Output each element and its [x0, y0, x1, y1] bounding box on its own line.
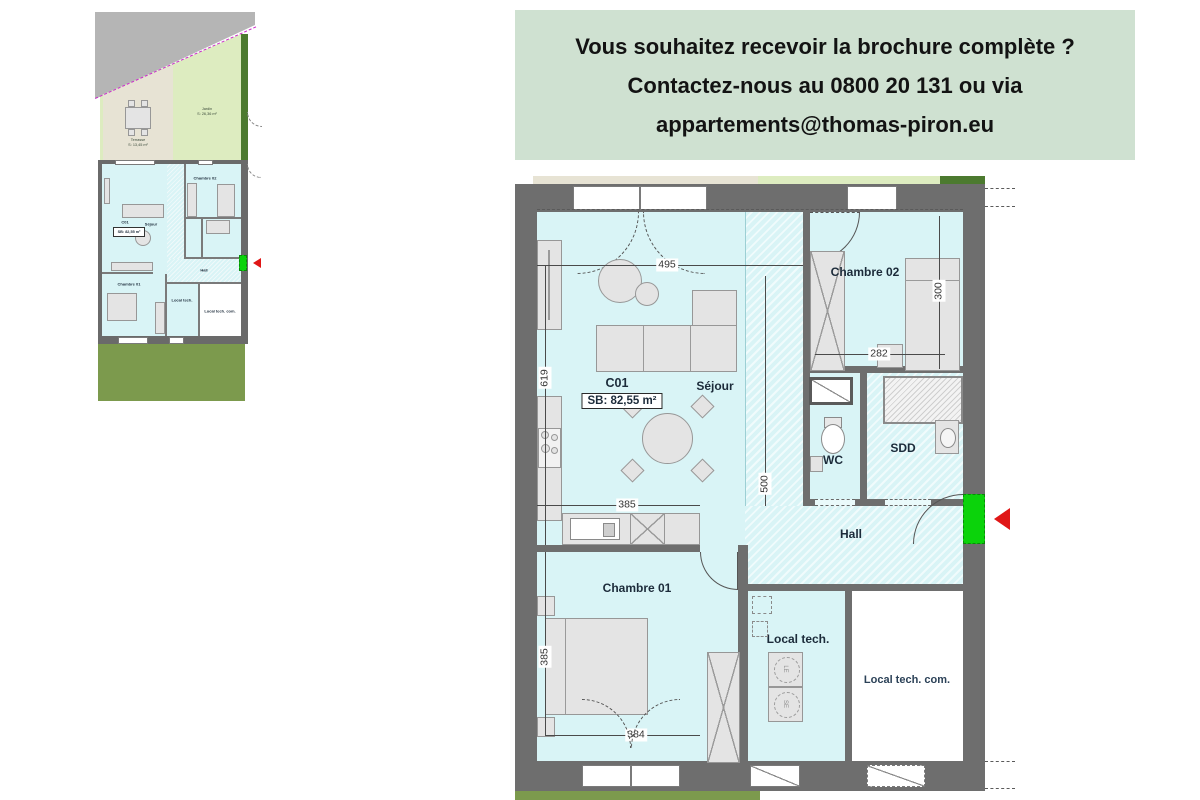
mini-window	[118, 337, 148, 344]
boundary-dashed	[985, 761, 1015, 762]
flyer-page: Vous souhaitez recevoir la brochure comp…	[0, 0, 1200, 800]
mini-window	[198, 160, 213, 165]
chambre01-wardrobe	[707, 652, 740, 763]
mini-wall	[102, 272, 153, 274]
mini-bed-ch02	[217, 184, 235, 217]
mini-chambre02-label: Chambre 02	[194, 176, 217, 181]
tv-line	[548, 250, 550, 320]
mini-shaft-hatch	[167, 164, 184, 259]
toilet-bowl	[821, 424, 845, 454]
mini-kitchen-counter	[111, 262, 153, 271]
mini-jardin-label: JardinS: 26,36 m²	[197, 107, 217, 117]
mini-unit-area: SB: 82,55 m²	[118, 230, 141, 234]
washer-label: LE	[782, 665, 788, 672]
mini-window	[115, 160, 155, 165]
wall-hall-bottom	[745, 584, 963, 591]
entrance-arrow	[994, 508, 1010, 530]
sofa-divider	[690, 326, 691, 371]
entrance-door	[963, 494, 985, 544]
mini-window	[169, 337, 184, 344]
wc-door-opening	[815, 499, 855, 506]
chambre01-nightstand	[537, 596, 555, 616]
dim-619: 619	[539, 367, 552, 389]
dim-line-619	[545, 265, 546, 545]
grass-strip	[515, 791, 760, 800]
window-dashed-line	[537, 209, 963, 210]
local-tech-window	[750, 765, 800, 787]
apartment-floor-plan: C01 SB: 82,55 m² Séjour 495 619 500 385 …	[515, 176, 1015, 800]
dim-line-500	[765, 276, 766, 506]
local-tech-com-label: Local tech. com.	[864, 674, 950, 686]
mini-local-tech-com-label: Local tech. com.	[204, 309, 235, 314]
shower	[883, 376, 963, 424]
banner-line2: Contactez-nous au 0800 20 131 ou via	[628, 66, 1023, 105]
mini-unit-code: C01	[121, 220, 128, 225]
sofa-seat	[596, 325, 737, 372]
dim-495: 495	[656, 259, 678, 272]
mini-local-tech-label: Local tech.	[172, 298, 193, 303]
dim-line-385-v	[545, 552, 546, 735]
utility-dashed-box	[752, 596, 772, 614]
chambre01-headboard-line	[565, 619, 566, 714]
window-chambre02	[847, 186, 897, 210]
mini-entrance-door	[239, 255, 247, 271]
dim-282: 282	[868, 348, 890, 361]
mini-door-swing	[247, 164, 261, 178]
dim-300: 300	[933, 280, 946, 302]
unit-area-label: SB: 82,55 m²	[587, 395, 656, 407]
chambre01-label: Chambre 01	[603, 581, 672, 595]
sdd-label: SDD	[890, 441, 915, 455]
chambre02-label: Chambre 02	[831, 265, 900, 279]
banner-line1: Vous souhaitez recevoir la brochure comp…	[575, 27, 1075, 66]
sdd-door-opening	[885, 499, 931, 506]
mini-unit-area-box: SB: 82,55 m²	[113, 227, 145, 237]
wall-right-lower	[963, 544, 985, 791]
dining-table	[642, 413, 693, 464]
mini-chair	[141, 129, 148, 136]
contact-banner: Vous souhaitez recevoir la brochure comp…	[515, 10, 1135, 160]
mini-door-swing	[247, 112, 262, 127]
wall-right-upper	[963, 184, 985, 494]
mini-wall	[165, 274, 167, 336]
boundary-dashed	[985, 206, 1015, 207]
mini-terrasse-label: TerrasseS: 13,45 m²	[128, 138, 148, 148]
chambre01-door-leaf	[737, 552, 738, 590]
mini-terrace-table	[125, 107, 151, 129]
mini-chair	[141, 100, 148, 107]
kitchen-cabinet-x	[630, 513, 665, 545]
mini-wall	[184, 164, 186, 259]
mini-hall-label: Hall	[200, 268, 207, 273]
mini-shower	[206, 220, 230, 234]
mini-sofa	[122, 204, 164, 218]
unit-area-box: SB: 82,55 m²	[581, 393, 662, 409]
wall-left	[515, 184, 537, 800]
coffee-table-small	[635, 282, 659, 306]
mini-tv-unit	[104, 178, 110, 204]
dim-500: 500	[759, 473, 772, 495]
utility-dashed-box	[752, 621, 768, 637]
mini-chair	[128, 129, 135, 136]
wc-label: WC	[823, 453, 843, 467]
mini-wardrobe-ch02	[187, 183, 197, 217]
mini-wall	[201, 219, 203, 257]
wc-shaft-window	[809, 377, 853, 405]
kitchen-faucet	[603, 523, 615, 537]
wall-lt-ltc-divider	[845, 591, 852, 761]
burner	[551, 434, 558, 441]
shaft-hatch	[745, 212, 803, 506]
chambre01-nightstand	[537, 717, 555, 737]
chambre02-door-leaf	[810, 212, 860, 213]
wall-sejour-chambre01	[537, 545, 700, 552]
sofa-divider	[643, 326, 644, 371]
dim-385-chambre01: 385	[539, 646, 552, 668]
mini-chambre01-label: Chambre 01	[118, 282, 141, 287]
sejour-label: Séjour	[696, 379, 733, 393]
sofa-chaise	[692, 290, 737, 326]
wc-sink	[810, 456, 823, 472]
chambre01-window-mullion	[630, 765, 632, 787]
unit-code-label: C01	[606, 376, 629, 390]
dryer-label: SE	[782, 700, 788, 708]
mini-grass	[98, 344, 245, 401]
boundary-dashed	[985, 788, 1015, 789]
mini-wall	[184, 257, 241, 259]
window-mullion	[639, 186, 641, 210]
mini-site-plan: JardinS: 26,36 m² TerrasseS: 13,45 m²	[95, 12, 267, 402]
mini-sejour-label: Séjour	[145, 222, 157, 227]
burner	[551, 447, 558, 454]
hall-label: Hall	[840, 527, 862, 541]
mini-bed-ch01	[107, 293, 137, 321]
banner-email: appartements@thomas-piron.eu	[656, 105, 994, 144]
wall-wc-sdd-divider	[860, 373, 867, 499]
mini-entrance-arrow	[253, 258, 261, 268]
sdd-basin-bowl	[940, 428, 956, 448]
mini-wardrobe-ch01	[155, 302, 165, 334]
local-tech-com-window	[867, 765, 925, 787]
hedge-strip	[241, 34, 248, 160]
local-tech-label: Local tech.	[767, 632, 830, 646]
mini-chair	[128, 100, 135, 107]
wall-shaft-chambre02	[803, 212, 810, 506]
boundary-dashed	[985, 188, 1015, 189]
shaft-edge-line	[745, 212, 746, 506]
dim-385-kitchen: 385	[616, 499, 638, 512]
mini-wall	[184, 217, 241, 219]
